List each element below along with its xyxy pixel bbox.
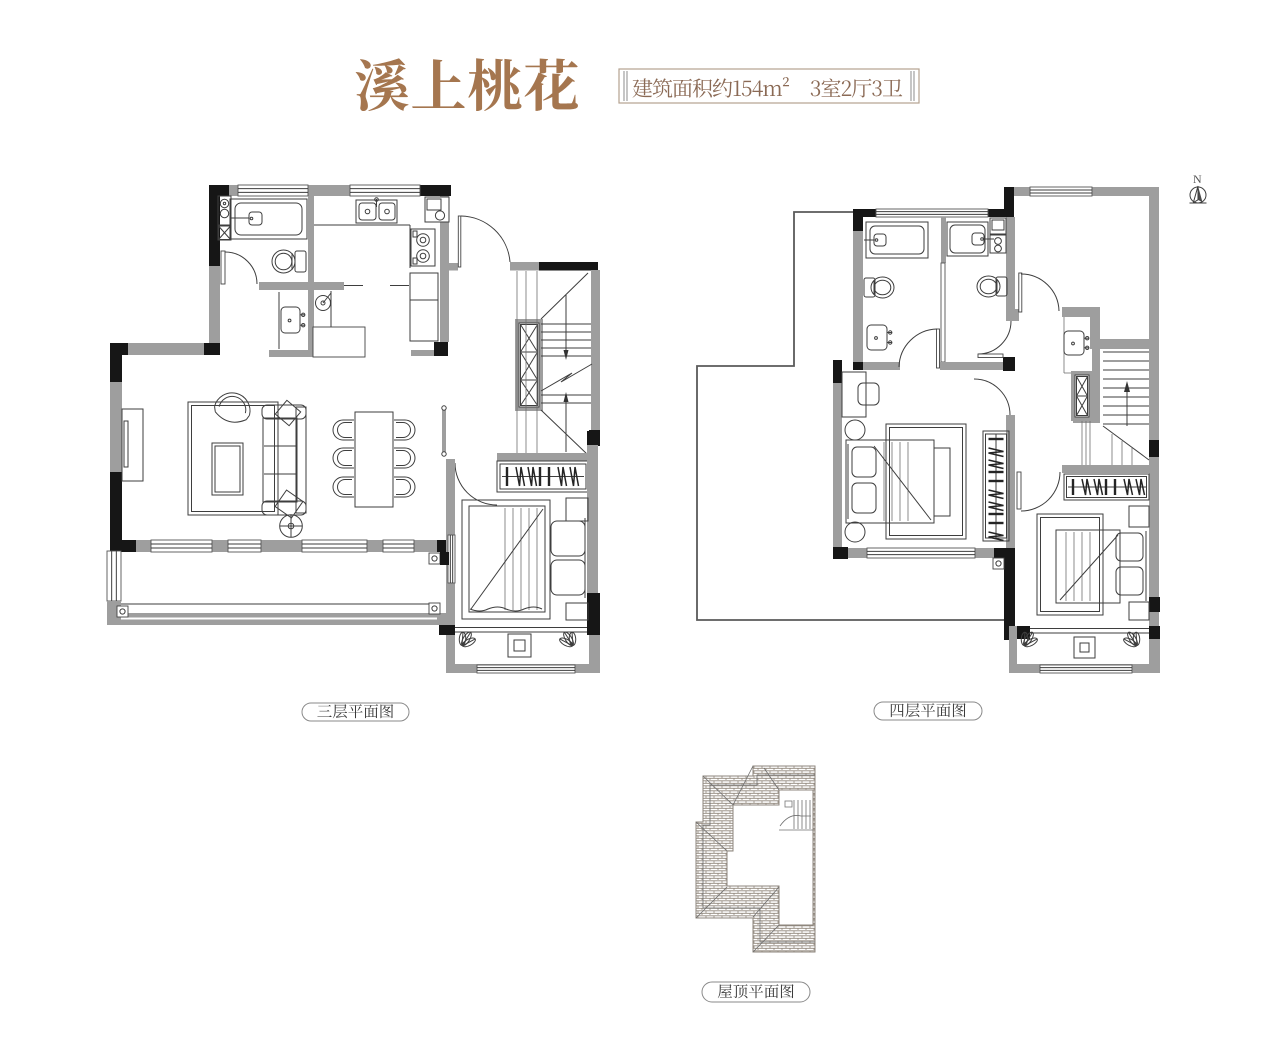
svg-text:N: N — [1193, 172, 1202, 186]
